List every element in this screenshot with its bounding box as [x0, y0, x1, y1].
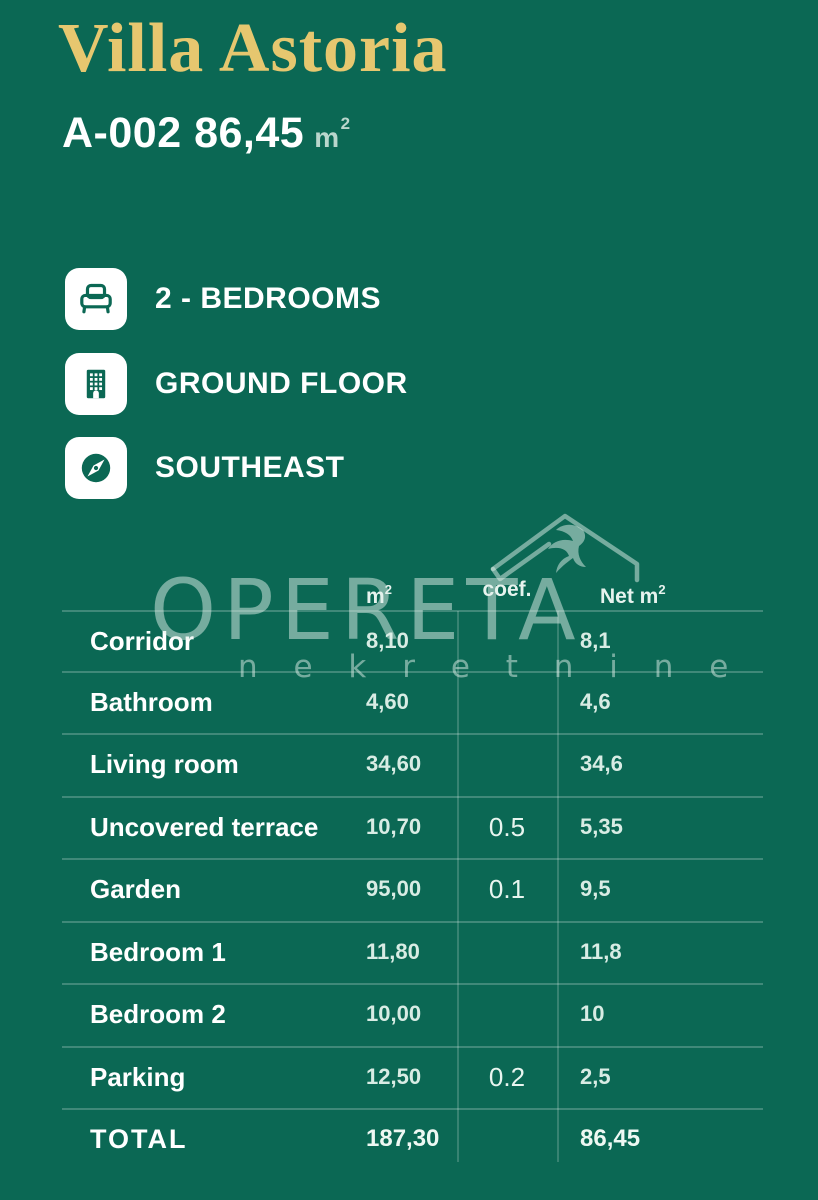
- table-row: Garden 95,00 0.1 9,5: [62, 858, 763, 920]
- area-table: m2 coef. Net m2 Corridor 8,10 8,1 Bathro…: [62, 565, 763, 1177]
- feature-label: 2 - BEDROOMS: [155, 282, 381, 316]
- table-header-row: m2 coef. Net m2: [62, 570, 763, 610]
- column-header-coef: coef.: [457, 570, 557, 610]
- room-label: Garden: [90, 858, 181, 920]
- room-net-value: 34,6: [580, 733, 623, 795]
- feature-label: SOUTHEAST: [155, 451, 345, 485]
- table-row: Uncovered terrace 10,70 0.5 5,35: [62, 796, 763, 858]
- bed-icon: [65, 268, 127, 330]
- compass-icon: [65, 437, 127, 499]
- room-label: Bedroom 1: [90, 921, 226, 983]
- page-title: Villa Astoria: [58, 10, 448, 87]
- room-label: TOTAL: [90, 1108, 188, 1170]
- room-area-value: 4,60: [366, 671, 409, 733]
- table-row: Bedroom 1 11,80 11,8: [62, 921, 763, 983]
- room-area-value: 12,50: [366, 1046, 421, 1108]
- room-label: Bathroom: [90, 671, 213, 733]
- room-label: Bedroom 2: [90, 983, 226, 1045]
- feature-bedrooms: 2 - BEDROOMS: [65, 268, 381, 330]
- table-row: Bathroom 4,60 4,6: [62, 671, 763, 733]
- table-row: Bedroom 2 10,00 10: [62, 983, 763, 1045]
- table-row: Living room 34,60 34,6: [62, 733, 763, 795]
- unit-code-and-area: A-002 86,45m2: [62, 112, 351, 155]
- room-area-value: 187,30: [366, 1108, 439, 1170]
- room-net-value: 5,35: [580, 796, 623, 858]
- room-label: Uncovered terrace: [90, 796, 318, 858]
- unit-area: 86,45: [194, 109, 304, 157]
- feature-floor: GROUND FLOOR: [65, 353, 408, 415]
- room-net-value: 9,5: [580, 858, 611, 920]
- unit-code: A-002: [62, 109, 182, 157]
- room-area-value: 10,70: [366, 796, 421, 858]
- room-label: Parking: [90, 1046, 185, 1108]
- room-net-value: 2,5: [580, 1046, 611, 1108]
- room-coef-value: 0.2: [457, 1046, 557, 1108]
- room-area-value: 11,80: [366, 921, 420, 983]
- room-area-value: 8,10: [366, 610, 409, 672]
- room-area-value: 95,00: [366, 858, 421, 920]
- room-net-value: 8,1: [580, 610, 611, 672]
- room-coef-value: 0.1: [457, 858, 557, 920]
- building-icon: [65, 353, 127, 415]
- room-net-value: 4,6: [580, 671, 611, 733]
- room-area-value: 34,60: [366, 733, 421, 795]
- feature-orientation: SOUTHEAST: [65, 437, 345, 499]
- table-row: Corridor 8,10 8,1: [62, 610, 763, 672]
- room-net-value: 86,45: [580, 1108, 640, 1170]
- room-coef-value: 0.5: [457, 796, 557, 858]
- feature-label: GROUND FLOOR: [155, 367, 408, 401]
- unit-area-unit: m2: [314, 122, 350, 153]
- room-net-value: 11,8: [580, 921, 622, 983]
- room-label: Corridor: [90, 610, 194, 672]
- unit-spec-sheet: Villa Astoria A-002 86,45m2 2 - BEDROOMS: [0, 0, 818, 1200]
- room-area-value: 10,00: [366, 983, 421, 1045]
- table-row: Parking 12,50 0.2 2,5: [62, 1046, 763, 1108]
- room-label: Living room: [90, 733, 239, 795]
- room-net-value: 10: [580, 983, 604, 1045]
- table-row: TOTAL 187,30 86,45: [62, 1108, 763, 1170]
